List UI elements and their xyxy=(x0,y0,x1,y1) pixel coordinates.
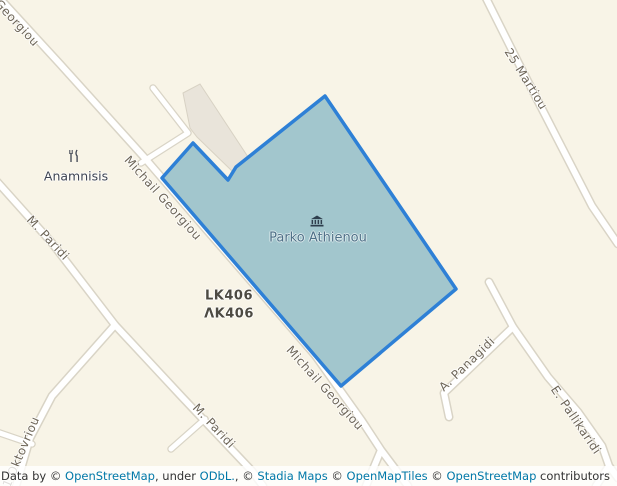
map-tiles xyxy=(0,0,617,486)
attribution-text: | Data by © xyxy=(0,469,65,483)
map-canvas[interactable]: Georgiou Michail Georgiou Michail Georgi… xyxy=(0,0,617,486)
attribution-text: contributors xyxy=(536,469,610,483)
attribution-bar: Leaflet | Data by © OpenStreetMap, under… xyxy=(0,466,617,486)
openstreetmap-link[interactable]: OpenStreetMap xyxy=(65,469,155,483)
openstreetmap-link-2[interactable]: OpenStreetMap xyxy=(446,469,536,483)
odbl-link[interactable]: ODbL. xyxy=(200,469,235,483)
attribution-text: © xyxy=(328,469,347,483)
stadia-maps-link[interactable]: Stadia Maps xyxy=(257,469,327,483)
openmaptiles-link[interactable]: OpenMapTiles xyxy=(347,469,428,483)
attribution-text: , under xyxy=(155,469,200,483)
attribution-text: © xyxy=(428,469,447,483)
attribution-text: , © xyxy=(235,469,257,483)
